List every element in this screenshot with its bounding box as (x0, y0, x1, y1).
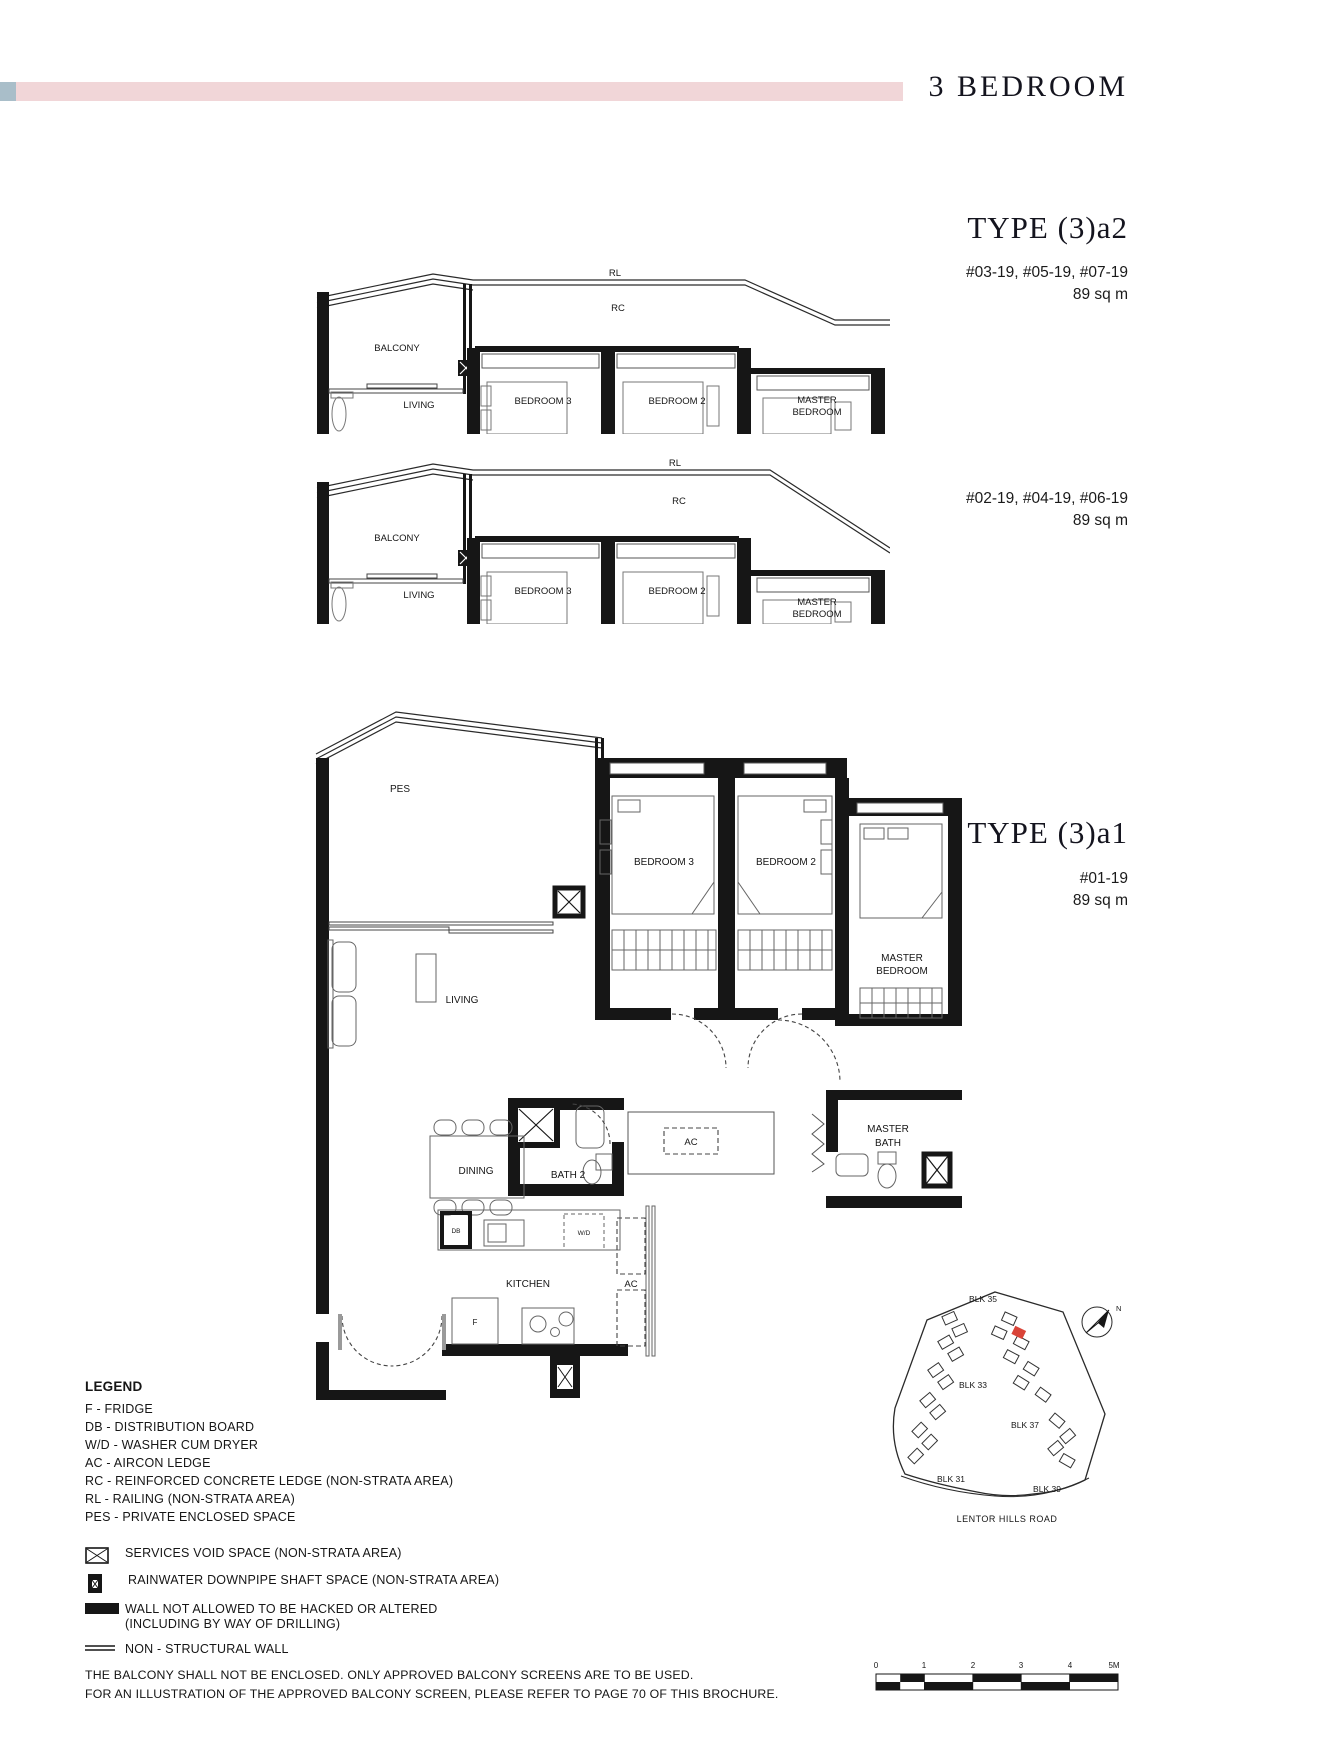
section-diagram-lower: RL RC BALCONY LIVING BEDROOM 3 BEDROOM 2… (315, 452, 890, 624)
dining-label: DINING (459, 1166, 494, 1177)
bath2-label: BATH 2 (551, 1170, 586, 1181)
bedroom3-label: BEDROOM 3 (514, 396, 571, 407)
master-bedroom-label-2: BEDROOM (876, 966, 928, 977)
wd-label: W/D (578, 1230, 591, 1237)
kitchen-ac-label: AC (624, 1279, 637, 1290)
stack1-area: 89 sq m (966, 284, 1128, 306)
rl-label: RL (669, 458, 681, 469)
hack-wall-label-line2: (INCLUDING BY WAY OF DRILLING) (125, 1617, 340, 1631)
legend-item: PES - PRIVATE ENCLOSED SPACE (85, 1508, 453, 1526)
stack1-units: #03-19, #05-19, #07-19 (966, 262, 1128, 284)
scale-tick-5m: 5M (1108, 1661, 1119, 1670)
balcony-label: BALCONY (374, 343, 420, 354)
legend-symbol-row: SERVICES VOID SPACE (NON-STRATA AREA) (85, 1546, 499, 1564)
pes-label: PES (390, 784, 410, 795)
a1-area: 89 sq m (1073, 890, 1128, 912)
ac-ledges (617, 1128, 718, 1346)
legend-item: DB - DISTRIBUTION BOARD (85, 1418, 453, 1436)
type-a2-heading: TYPE (3)a2 (967, 210, 1128, 246)
highlighted-unit-stack-19 (1011, 1326, 1026, 1339)
disclaimer-line1: THE BALCONY SHALL NOT BE ENCLOSED. ONLY … (85, 1666, 779, 1685)
balcony-left-wall (317, 482, 329, 624)
balcony-label: BALCONY (374, 533, 420, 544)
section-diagram-upper: RL RC BALCONY LIVING BEDROOM 3 BEDROOM 2… (315, 262, 890, 434)
rc-label: RC (672, 496, 686, 507)
roof-railing-lines (317, 274, 890, 325)
bedroom2-label: BEDROOM 2 (648, 396, 705, 407)
master-label-2: BEDROOM (792, 609, 841, 620)
type-a2-stack2-info: #02-19, #04-19, #06-19 89 sq m (966, 488, 1128, 532)
blk-31-label: BLK 31 (937, 1474, 965, 1484)
corridor-ac-ledge-outline (628, 1112, 824, 1174)
living-label: LIVING (403, 400, 434, 411)
legend-item: RL - RAILING (NON-STRATA AREA) (85, 1490, 453, 1508)
master-bedroom-label-1: MASTER (881, 953, 923, 964)
living-furniture (328, 940, 436, 1048)
site-plan: BLK 35 BLK 33 BLK 37 BLK 31 BLK 39 N LEN… (865, 1286, 1130, 1548)
master-label-1: MASTER (797, 597, 837, 608)
type-a1-info: #01-19 89 sq m (1073, 868, 1128, 912)
legend-title: LEGEND (85, 1378, 453, 1396)
db-label: DB (451, 1228, 460, 1235)
services-void-bath2 (515, 1105, 557, 1145)
non-structural-wall-icon (85, 1642, 125, 1653)
balcony-left-wall (317, 292, 329, 434)
legend: LEGEND F - FRIDGE DB - DISTRIBUTION BOAR… (85, 1378, 453, 1526)
legend-symbol-row: WALL NOT ALLOWED TO BE HACKED OR ALTERED… (85, 1602, 499, 1632)
scale-tick-4: 4 (1068, 1661, 1073, 1670)
master-label-2: BEDROOM (792, 407, 841, 418)
balcony-screen-line (463, 284, 466, 394)
bedroom3-label: BEDROOM 3 (514, 586, 571, 597)
scale-tick-2: 2 (971, 1661, 976, 1670)
site-boundary (893, 1292, 1105, 1496)
master-bedroom-furniture (860, 824, 942, 1018)
type-a2-stack1-info: #03-19, #05-19, #07-19 89 sq m (966, 262, 1128, 306)
road-label: LENTOR HILLS ROAD (957, 1514, 1058, 1524)
bedroom3-furniture (600, 796, 716, 970)
blk-37-label: BLK 37 (1011, 1420, 1039, 1430)
bedroom-windows (610, 763, 943, 813)
disclaimer-line2: FOR AN ILLUSTRATION OF THE APPROVED BALC… (85, 1685, 779, 1704)
bedroom2-label: BEDROOM 2 (756, 857, 816, 868)
rc-label: RC (611, 303, 625, 314)
page-title: 3 BEDROOM (928, 70, 1128, 104)
rainwater-shaft (557, 1365, 573, 1389)
hack-wall-icon (85, 1602, 125, 1614)
services-void-pes (555, 888, 583, 916)
corridor-ac-label: AC (684, 1137, 697, 1148)
blk-39-label: BLK 39 (1033, 1484, 1061, 1494)
bedroom2-furniture (738, 796, 832, 970)
rainwater-downpipe-icon (85, 1573, 128, 1593)
rl-label: RL (609, 268, 621, 279)
legend-symbol-label: RAINWATER DOWNPIPE SHAFT SPACE (NON-STRA… (128, 1573, 499, 1588)
legend-item: W/D - WASHER CUM DRYER (85, 1436, 453, 1454)
services-void-masterbath (924, 1154, 950, 1186)
kitchen-label: KITCHEN (506, 1279, 550, 1290)
scale-tick-3: 3 (1019, 1661, 1024, 1670)
living-label: LIVING (403, 590, 434, 601)
scale-bar: 0 1 2 3 4 5M (868, 1656, 1123, 1704)
legend-item: AC - AIRCON LEDGE (85, 1454, 453, 1472)
fridge-label: F (473, 1318, 478, 1327)
master-bath-label-1: MASTER (867, 1124, 909, 1135)
services-void-icon (85, 1546, 125, 1564)
legend-symbol-label: SERVICES VOID SPACE (NON-STRATA AREA) (125, 1546, 402, 1561)
window-strips (482, 544, 869, 592)
hack-wall-label-line1: WALL NOT ALLOWED TO BE HACKED OR ALTERED (125, 1602, 437, 1616)
balcony-screen-line (463, 474, 466, 584)
pes-sliding-door (329, 922, 553, 933)
entry-door-leaves (338, 1314, 446, 1350)
master-label-1: MASTER (797, 395, 837, 406)
stack2-units: #02-19, #04-19, #06-19 (966, 488, 1128, 510)
legend-symbol-row: NON - STRUCTURAL WALL (85, 1642, 499, 1657)
a1-units: #01-19 (1073, 868, 1128, 890)
balcony-disclaimer: THE BALCONY SHALL NOT BE ENCLOSED. ONLY … (85, 1666, 779, 1704)
scale-tick-1: 1 (922, 1661, 927, 1670)
north-compass-icon: N (1082, 1304, 1121, 1337)
legend-item: RC - REINFORCED CONCRETE LEDGE (NON-STRA… (85, 1472, 453, 1490)
block-units-right-arm (991, 1312, 1075, 1468)
legend-symbol-row: RAINWATER DOWNPIPE SHAFT SPACE (NON-STRA… (85, 1573, 499, 1593)
type-a1-heading: TYPE (3)a1 (967, 815, 1128, 851)
legend-symbol-label: NON - STRUCTURAL WALL (125, 1642, 289, 1657)
accent-bar-blue-segment (0, 82, 16, 101)
accent-bar-pink-segment (16, 82, 903, 101)
living-label: LIVING (446, 995, 479, 1006)
legend-symbols: SERVICES VOID SPACE (NON-STRATA AREA) RA… (85, 1546, 499, 1666)
blk-35-label: BLK 35 (969, 1294, 997, 1304)
master-bath-label-2: BATH (875, 1138, 901, 1149)
bedroom3-label: BEDROOM 3 (634, 857, 694, 868)
legend-item: F - FRIDGE (85, 1400, 453, 1418)
bedroom2-label: BEDROOM 2 (648, 586, 705, 597)
north-label: N (1116, 1304, 1121, 1313)
blk-33-label: BLK 33 (959, 1380, 987, 1390)
scale-bar-segments (876, 1674, 1118, 1690)
pes-canopy-lines (316, 712, 602, 764)
scale-tick-0: 0 (874, 1661, 879, 1670)
stack2-area: 89 sq m (966, 510, 1128, 532)
legend-symbol-label: WALL NOT ALLOWED TO BE HACKED OR ALTERED… (125, 1602, 437, 1632)
